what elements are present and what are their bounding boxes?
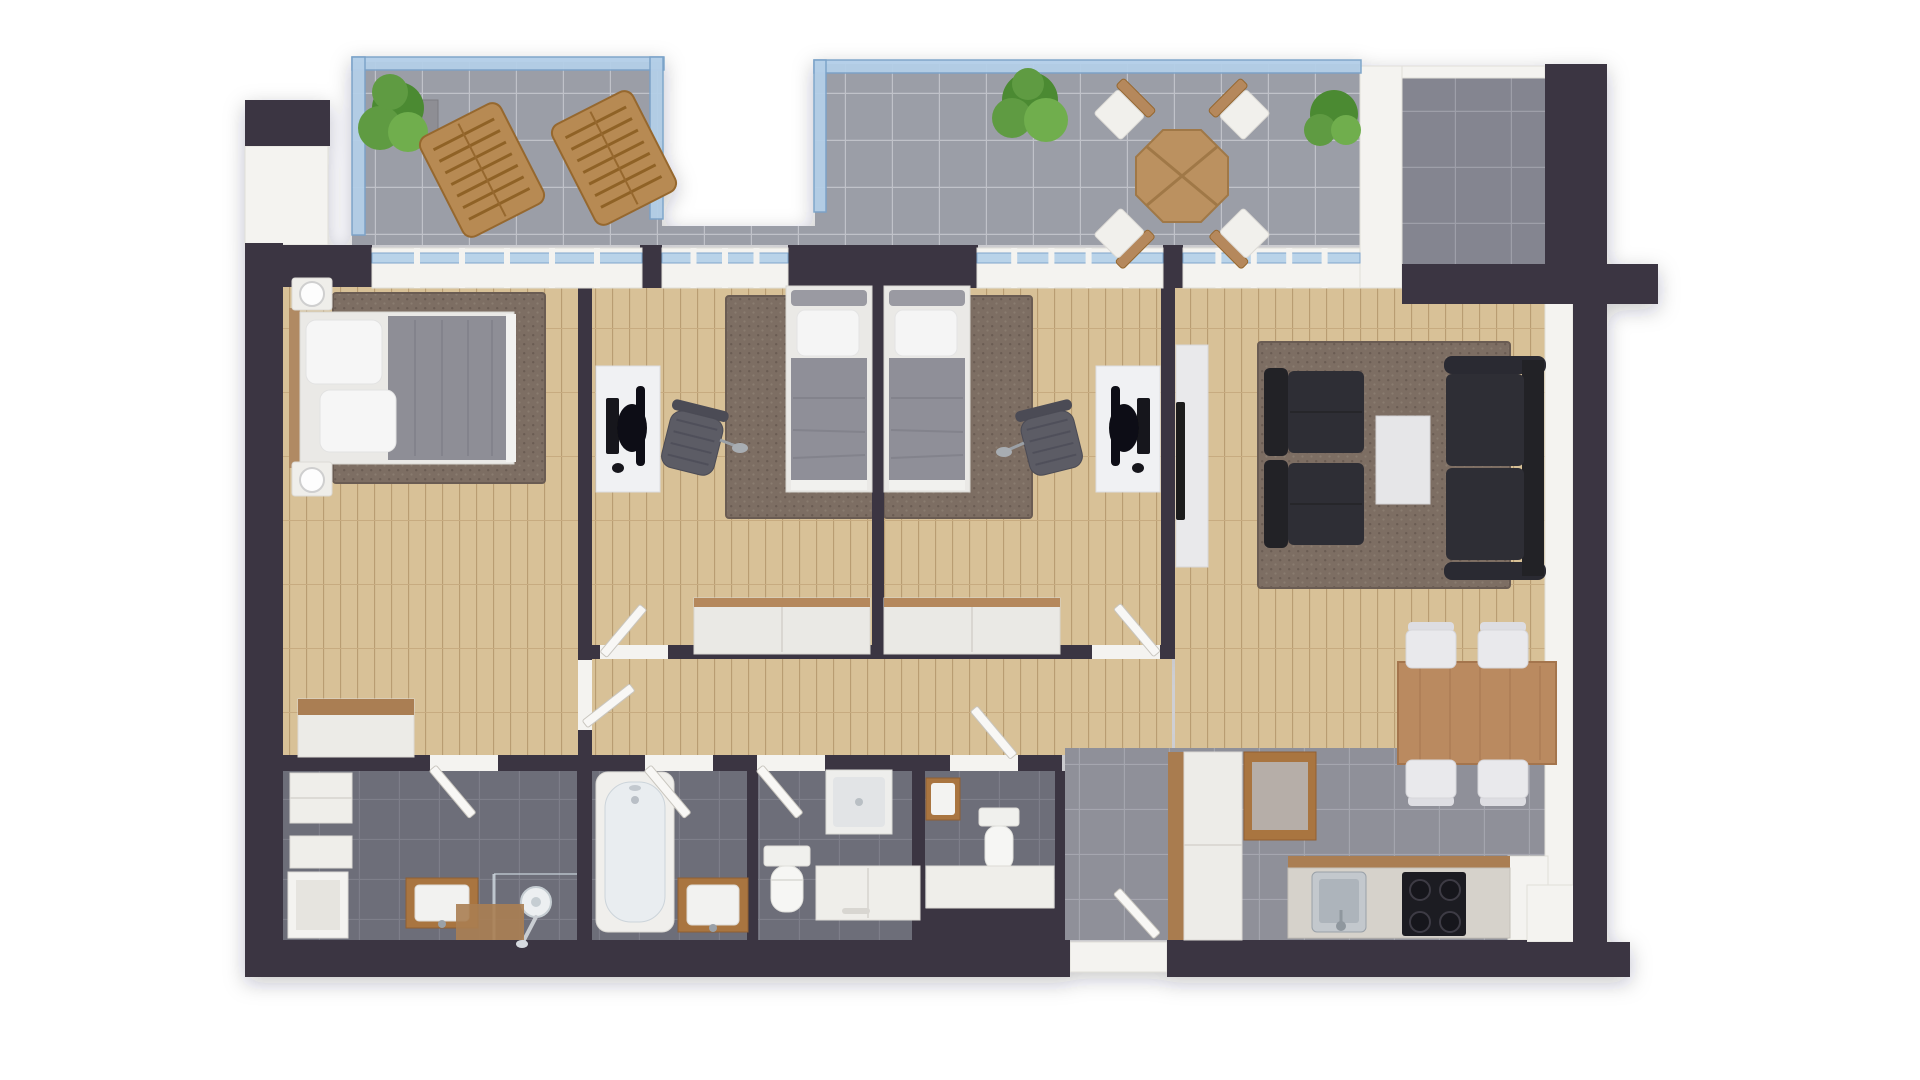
wc-counter	[926, 866, 1054, 908]
floor-plan-canvas	[0, 0, 1920, 1080]
wall-right	[1573, 304, 1607, 977]
wall-bottom-corner	[1527, 942, 1630, 977]
bath-mat	[456, 904, 524, 940]
dining-chair-4	[1478, 760, 1528, 806]
wall-white-terrace-left	[1360, 66, 1402, 288]
floor-corridor	[592, 645, 1172, 755]
tv-console	[1176, 345, 1208, 567]
shower-tray	[826, 770, 892, 834]
ensuite-closet	[288, 872, 348, 938]
wall-ensuite-bath	[577, 771, 592, 940]
floor-balcony-strip	[662, 226, 815, 245]
wall-white-entry-sill	[1070, 942, 1167, 972]
wall-bed2-bed3	[872, 285, 884, 653]
kitchen-fridge	[1168, 752, 1242, 940]
desk-2	[1096, 366, 1160, 492]
master-bed	[289, 308, 516, 468]
wall-white-top-left	[245, 146, 328, 245]
wall-bed3-living	[1161, 285, 1175, 653]
railing-left-west	[352, 57, 365, 235]
railing-left-top	[352, 57, 664, 70]
railing-right-top	[814, 60, 1361, 73]
wall-stub-top-left	[245, 100, 330, 146]
ensuite-shelf-b	[290, 836, 352, 868]
wc-corner-sink	[926, 778, 960, 820]
wall-top-seg-2	[788, 245, 978, 288]
floor-plan-svg	[0, 0, 1920, 1080]
wall-bottom-left	[245, 940, 1070, 977]
patio-table	[1136, 130, 1228, 222]
dining-chair-3	[1406, 760, 1456, 806]
window-master	[372, 248, 642, 288]
armchair-2	[1264, 460, 1364, 548]
wardrobe-1	[694, 598, 870, 654]
wall-top-seg-1	[640, 245, 662, 288]
washer-counter	[816, 866, 920, 920]
wall-wc-entry	[1055, 771, 1065, 940]
wall-corridor-south-c	[713, 755, 757, 771]
nightstand-top	[292, 278, 332, 310]
floor-terrace-right	[1402, 78, 1545, 264]
sofa	[1444, 356, 1546, 580]
wall-left	[245, 243, 283, 977]
kitchen-counter	[1288, 856, 1510, 938]
floor-balcony-right	[815, 64, 1360, 245]
dining-chair-1	[1406, 622, 1456, 668]
wall-bath-shower	[747, 771, 758, 940]
nightstand-bottom	[292, 462, 332, 496]
wall-wc-bottom	[925, 908, 1055, 940]
wall-corridor-south-d	[825, 755, 950, 771]
kitchen-wall-cabinet	[1244, 752, 1316, 840]
dining-table	[1398, 662, 1556, 764]
wall-terrace-bottom	[1402, 264, 1658, 304]
wardrobe-2	[884, 598, 1060, 654]
toilet-2	[979, 808, 1019, 870]
wall-white-terrace-top	[1402, 66, 1545, 78]
desk-1	[596, 366, 660, 492]
wall-top-seg-3	[1163, 245, 1183, 288]
wall-bedrooms-south-c	[1160, 645, 1175, 659]
wall-bottom-right	[1167, 940, 1527, 977]
wall-white-right-inner	[1545, 295, 1573, 940]
wall-nook-side	[1584, 885, 1607, 942]
armchair-1	[1264, 368, 1364, 456]
cooktop	[1402, 872, 1466, 936]
window-bedroom-2	[662, 248, 788, 288]
wall-corridor-south-e	[1018, 755, 1062, 771]
coffee-table	[1376, 416, 1430, 504]
railing-right-west	[814, 60, 826, 212]
bathtub	[596, 772, 674, 932]
bed-single-1	[786, 286, 872, 492]
window-living	[1183, 248, 1360, 288]
bed-single-2	[884, 286, 970, 492]
bath-vanity	[678, 878, 748, 932]
wall-right-top	[1545, 64, 1607, 304]
dining-chair-2	[1478, 622, 1528, 668]
wall-corridor-south-b	[498, 755, 645, 771]
ensuite-shelf-a	[290, 773, 352, 823]
master-dresser	[298, 699, 414, 757]
